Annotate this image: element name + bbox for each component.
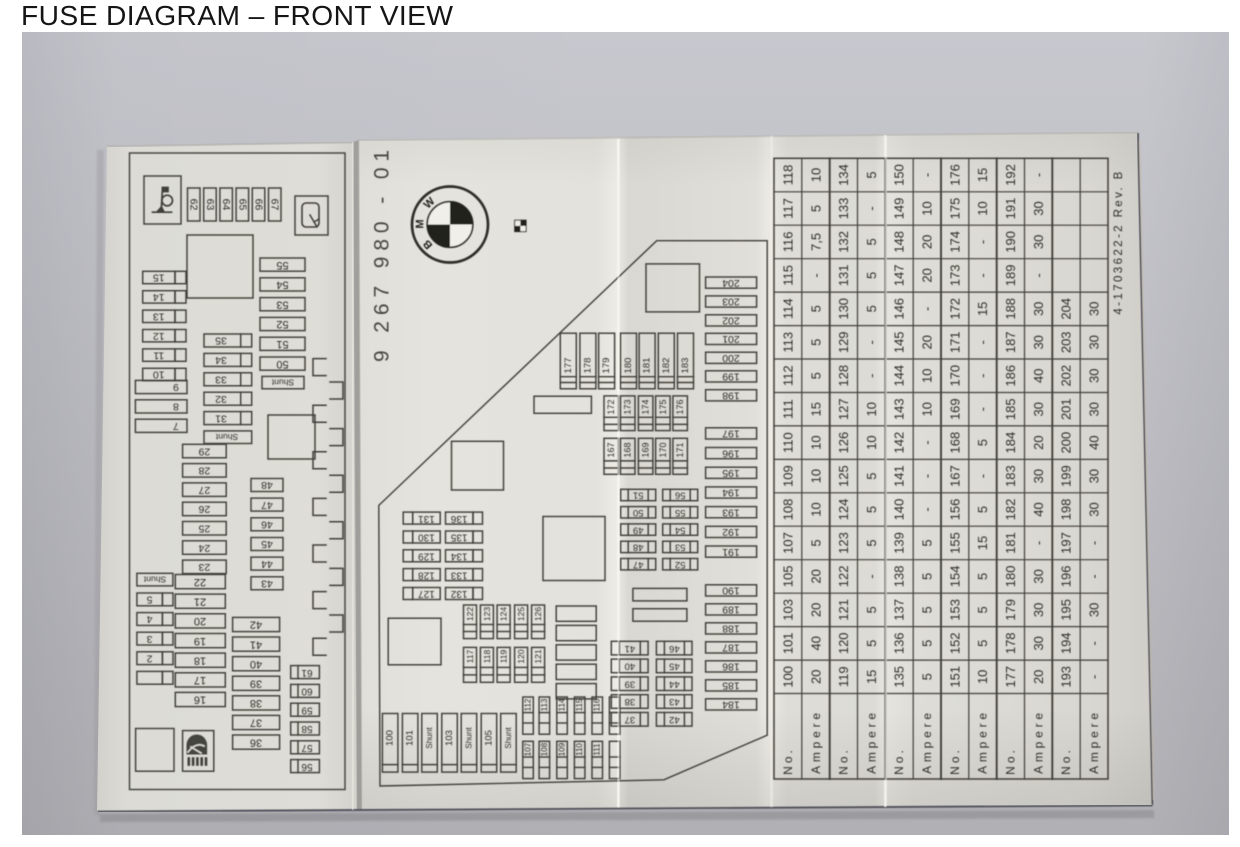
svg-text:40: 40 xyxy=(1031,368,1046,382)
svg-text:5: 5 xyxy=(864,640,879,647)
svg-text:173: 173 xyxy=(623,399,633,414)
svg-text:179: 179 xyxy=(601,358,612,374)
svg-text:118: 118 xyxy=(482,649,492,663)
svg-text:202: 202 xyxy=(1059,365,1074,387)
svg-text:15: 15 xyxy=(975,168,990,182)
svg-text:30: 30 xyxy=(1087,603,1102,617)
svg-text:115: 115 xyxy=(780,265,795,286)
svg-text:30: 30 xyxy=(1087,402,1102,416)
svg-text:39: 39 xyxy=(250,678,262,690)
svg-text:133: 133 xyxy=(836,198,851,220)
svg-text:17: 17 xyxy=(194,674,206,686)
svg-text:15: 15 xyxy=(808,402,823,416)
svg-text:136: 136 xyxy=(892,632,907,654)
svg-text:30: 30 xyxy=(1031,402,1046,416)
svg-text:-: - xyxy=(808,273,823,277)
svg-text:138: 138 xyxy=(892,566,907,588)
svg-text:5: 5 xyxy=(808,305,823,312)
svg-text:Shunt: Shunt xyxy=(143,575,166,585)
svg-text:30: 30 xyxy=(1031,201,1046,215)
svg-text:123: 123 xyxy=(836,532,851,554)
svg-text:134: 134 xyxy=(836,164,851,186)
svg-text:40: 40 xyxy=(1031,502,1046,516)
svg-text:30: 30 xyxy=(1031,302,1046,316)
svg-text:192: 192 xyxy=(1003,164,1018,186)
svg-text:175: 175 xyxy=(658,399,668,414)
svg-text:Shunt: Shunt xyxy=(504,727,513,749)
svg-text:40: 40 xyxy=(808,636,823,650)
svg-text:10: 10 xyxy=(975,201,990,215)
svg-text:53: 53 xyxy=(276,298,288,310)
svg-text:188: 188 xyxy=(1003,298,1018,320)
svg-text:40: 40 xyxy=(625,661,636,672)
svg-text:-: - xyxy=(975,407,990,411)
svg-text:118: 118 xyxy=(780,165,795,186)
svg-text:171: 171 xyxy=(675,442,685,457)
svg-text:5: 5 xyxy=(808,372,823,379)
svg-text:185: 185 xyxy=(722,680,740,692)
svg-text:201: 201 xyxy=(1059,398,1074,420)
svg-text:183: 183 xyxy=(680,358,691,374)
svg-text:55: 55 xyxy=(675,507,686,518)
svg-text:36: 36 xyxy=(250,736,262,748)
svg-text:66: 66 xyxy=(253,199,265,211)
svg-text:111: 111 xyxy=(780,399,795,419)
svg-text:139: 139 xyxy=(892,532,907,554)
svg-text:52: 52 xyxy=(276,318,288,330)
svg-text:12: 12 xyxy=(153,330,165,342)
svg-text:5: 5 xyxy=(808,339,823,346)
svg-text:182: 182 xyxy=(661,358,672,374)
svg-text:5: 5 xyxy=(864,506,879,513)
svg-text:10: 10 xyxy=(808,168,823,182)
svg-text:129: 129 xyxy=(836,331,851,353)
svg-text:51: 51 xyxy=(633,490,644,501)
svg-text:116: 116 xyxy=(593,698,602,711)
svg-text:112: 112 xyxy=(524,698,533,711)
svg-text:172: 172 xyxy=(947,298,962,320)
svg-text:42: 42 xyxy=(250,619,262,631)
svg-text:131: 131 xyxy=(836,265,851,287)
svg-text:38: 38 xyxy=(250,697,262,709)
svg-text:67: 67 xyxy=(269,199,281,211)
svg-text:128: 128 xyxy=(418,569,435,580)
svg-text:42: 42 xyxy=(669,714,680,725)
svg-text:189: 189 xyxy=(722,604,740,616)
svg-text:128: 128 xyxy=(836,365,851,387)
svg-text:-: - xyxy=(864,374,879,378)
svg-text:126: 126 xyxy=(836,432,851,454)
svg-text:133: 133 xyxy=(450,569,467,580)
svg-text:204: 204 xyxy=(1059,298,1074,320)
svg-text:177: 177 xyxy=(563,358,574,374)
svg-text:10: 10 xyxy=(920,201,935,215)
svg-text:141: 141 xyxy=(892,465,907,487)
svg-text:50: 50 xyxy=(276,358,288,370)
svg-text:55: 55 xyxy=(276,259,288,271)
svg-text:196: 196 xyxy=(722,447,740,459)
svg-text:186: 186 xyxy=(722,661,740,673)
svg-text:10: 10 xyxy=(153,369,165,381)
svg-text:30: 30 xyxy=(1031,235,1046,249)
svg-text:5: 5 xyxy=(147,594,153,606)
svg-text:10: 10 xyxy=(808,469,823,483)
svg-text:120: 120 xyxy=(836,632,851,654)
svg-text:193: 193 xyxy=(722,506,740,518)
svg-text:153: 153 xyxy=(947,599,962,621)
svg-text:39: 39 xyxy=(625,678,636,689)
svg-text:196: 196 xyxy=(1059,566,1074,588)
svg-text:144: 144 xyxy=(892,365,907,387)
svg-text:No.: No. xyxy=(948,747,962,775)
svg-text:Shunt: Shunt xyxy=(271,378,294,388)
svg-text:117: 117 xyxy=(465,649,475,663)
svg-text:197: 197 xyxy=(1059,532,1074,554)
svg-text:44: 44 xyxy=(669,678,680,689)
svg-text:198: 198 xyxy=(1059,499,1074,521)
svg-text:18: 18 xyxy=(194,654,206,666)
svg-text:180: 180 xyxy=(623,358,634,374)
svg-text:120: 120 xyxy=(516,649,526,663)
svg-text:152: 152 xyxy=(947,632,962,654)
svg-text:-: - xyxy=(920,507,935,511)
svg-text:190: 190 xyxy=(722,585,740,597)
svg-text:31: 31 xyxy=(215,412,227,424)
svg-text:10: 10 xyxy=(920,368,935,382)
svg-text:172: 172 xyxy=(606,399,616,414)
svg-text:143: 143 xyxy=(892,398,907,420)
svg-text:117: 117 xyxy=(780,198,795,219)
svg-text:122: 122 xyxy=(836,566,851,588)
svg-text:204: 204 xyxy=(722,277,740,289)
svg-text:54: 54 xyxy=(675,524,686,535)
svg-text:5: 5 xyxy=(864,171,879,178)
svg-text:Ampere: Ampere xyxy=(1031,709,1045,774)
svg-text:101: 101 xyxy=(405,730,416,746)
svg-text:49: 49 xyxy=(633,524,644,535)
svg-text:5: 5 xyxy=(864,606,879,613)
svg-text:47: 47 xyxy=(261,499,273,511)
svg-text:56: 56 xyxy=(301,761,313,772)
svg-text:146: 146 xyxy=(892,298,907,320)
svg-text:114: 114 xyxy=(558,698,567,711)
svg-text:5: 5 xyxy=(864,472,879,479)
svg-text:183: 183 xyxy=(1003,465,1018,487)
svg-text:176: 176 xyxy=(675,399,685,414)
svg-text:30: 30 xyxy=(1031,569,1046,583)
svg-text:59: 59 xyxy=(301,704,313,715)
svg-text:-: - xyxy=(1087,675,1102,679)
svg-text:38: 38 xyxy=(625,696,636,707)
svg-text:-: - xyxy=(1031,541,1046,545)
svg-text:145: 145 xyxy=(892,331,907,353)
svg-text:-: - xyxy=(920,173,935,177)
svg-text:125: 125 xyxy=(836,465,851,487)
svg-text:187: 187 xyxy=(1003,331,1018,353)
svg-text:20: 20 xyxy=(1031,670,1046,684)
svg-text:56: 56 xyxy=(675,490,686,501)
svg-text:170: 170 xyxy=(658,442,668,457)
svg-text:30: 30 xyxy=(1031,469,1046,483)
svg-text:5: 5 xyxy=(808,205,823,212)
svg-text:5: 5 xyxy=(864,238,879,245)
svg-text:113: 113 xyxy=(540,698,549,711)
svg-text:10: 10 xyxy=(808,435,823,449)
svg-text:186: 186 xyxy=(1003,365,1018,387)
svg-text:-: - xyxy=(864,574,879,578)
svg-text:107: 107 xyxy=(780,532,795,554)
svg-text:28: 28 xyxy=(198,465,210,477)
svg-text:43: 43 xyxy=(261,578,273,590)
svg-text:181: 181 xyxy=(642,358,653,374)
svg-text:191: 191 xyxy=(722,546,740,558)
svg-text:20: 20 xyxy=(920,235,935,249)
svg-text:-: - xyxy=(864,340,879,344)
svg-text:156: 156 xyxy=(947,499,962,521)
svg-text:21: 21 xyxy=(194,595,206,607)
svg-text:45: 45 xyxy=(261,538,273,550)
svg-text:182: 182 xyxy=(1003,499,1018,521)
svg-text:173: 173 xyxy=(947,265,962,287)
svg-text:-: - xyxy=(975,240,990,244)
svg-text:60: 60 xyxy=(301,686,313,697)
svg-text:No.: No. xyxy=(781,747,795,775)
svg-text:20: 20 xyxy=(920,335,935,349)
svg-text:126: 126 xyxy=(533,607,543,621)
svg-text:5: 5 xyxy=(864,539,879,546)
svg-text:5: 5 xyxy=(975,573,990,580)
svg-text:168: 168 xyxy=(623,442,633,457)
svg-text:121: 121 xyxy=(533,649,543,663)
svg-text:176: 176 xyxy=(947,164,962,186)
svg-text:187: 187 xyxy=(722,642,740,654)
svg-text:30: 30 xyxy=(1031,603,1046,617)
svg-text:137: 137 xyxy=(892,599,907,621)
svg-text:178: 178 xyxy=(1003,632,1018,654)
svg-text:108: 108 xyxy=(540,742,549,756)
svg-text:27: 27 xyxy=(198,484,210,496)
svg-text:No.: No. xyxy=(1059,747,1073,775)
svg-text:10: 10 xyxy=(920,402,935,416)
svg-text:FUSE DIAGRAM – FRONT VIEW: FUSE DIAGRAM – FRONT VIEW xyxy=(21,0,453,31)
svg-text:184: 184 xyxy=(722,699,740,711)
svg-text:8: 8 xyxy=(173,401,179,413)
svg-text:20: 20 xyxy=(194,615,206,627)
svg-text:132: 132 xyxy=(450,588,467,599)
svg-text:108: 108 xyxy=(780,499,795,521)
svg-text:45: 45 xyxy=(669,661,680,672)
svg-text:201: 201 xyxy=(722,333,740,345)
svg-text:134: 134 xyxy=(450,551,467,562)
svg-text:105: 105 xyxy=(483,730,494,746)
svg-text:194: 194 xyxy=(1059,632,1074,654)
svg-text:100: 100 xyxy=(385,730,396,746)
svg-text:16: 16 xyxy=(194,694,206,706)
svg-text:-: - xyxy=(975,340,990,344)
svg-text:197: 197 xyxy=(722,428,740,440)
svg-text:Ampere: Ampere xyxy=(976,709,990,774)
svg-text:9 267 980 - 01: 9 267 980 - 01 xyxy=(371,144,394,362)
svg-text:40: 40 xyxy=(1087,435,1102,449)
svg-text:20: 20 xyxy=(808,603,823,617)
svg-text:15: 15 xyxy=(975,536,990,550)
svg-text:61: 61 xyxy=(301,667,313,678)
svg-text:125: 125 xyxy=(516,607,526,621)
svg-text:30: 30 xyxy=(1087,302,1102,316)
svg-text:174: 174 xyxy=(641,399,651,414)
svg-text:20: 20 xyxy=(808,569,823,583)
svg-text:46: 46 xyxy=(669,643,680,654)
svg-text:148: 148 xyxy=(892,231,907,253)
svg-text:Ampere: Ampere xyxy=(864,709,878,774)
svg-text:57: 57 xyxy=(301,742,313,753)
svg-text:154: 154 xyxy=(947,566,962,588)
svg-text:5: 5 xyxy=(864,305,879,312)
svg-text:122: 122 xyxy=(465,607,475,621)
svg-text:155: 155 xyxy=(947,532,962,554)
svg-text:53: 53 xyxy=(675,542,686,553)
svg-text:5: 5 xyxy=(975,439,990,446)
svg-text:Shunt: Shunt xyxy=(464,727,473,749)
svg-text:110: 110 xyxy=(575,743,584,756)
svg-text:11: 11 xyxy=(153,349,164,361)
svg-text:20: 20 xyxy=(1031,435,1046,449)
svg-text:129: 129 xyxy=(418,551,435,562)
svg-text:115: 115 xyxy=(575,698,584,711)
svg-text:121: 121 xyxy=(836,599,851,621)
svg-text:20: 20 xyxy=(920,268,935,282)
svg-text:167: 167 xyxy=(606,442,616,457)
svg-text:15: 15 xyxy=(153,272,165,284)
svg-text:4-1703622-2 Rev. B: 4-1703622-2 Rev. B xyxy=(1113,169,1125,314)
svg-text:192: 192 xyxy=(722,526,740,538)
svg-text:5: 5 xyxy=(920,673,935,680)
svg-text:199: 199 xyxy=(722,371,740,383)
svg-text:178: 178 xyxy=(582,358,593,374)
svg-text:22: 22 xyxy=(194,576,206,588)
svg-text:195: 195 xyxy=(722,467,740,479)
svg-text:14: 14 xyxy=(153,291,165,303)
svg-text:No.: No. xyxy=(1004,747,1018,775)
svg-text:-: - xyxy=(1031,273,1046,277)
svg-text:170: 170 xyxy=(947,365,962,387)
svg-text:5: 5 xyxy=(920,573,935,580)
svg-text:46: 46 xyxy=(261,519,273,531)
svg-text:23: 23 xyxy=(198,561,210,573)
svg-text:-: - xyxy=(920,307,935,311)
svg-text:203: 203 xyxy=(1059,331,1074,353)
svg-text:116: 116 xyxy=(780,232,795,253)
svg-text:190: 190 xyxy=(1003,231,1018,253)
svg-text:195: 195 xyxy=(1059,599,1074,621)
svg-text:10: 10 xyxy=(864,435,879,449)
svg-text:202: 202 xyxy=(722,315,740,327)
svg-text:124: 124 xyxy=(499,607,509,621)
svg-text:203: 203 xyxy=(722,296,740,308)
svg-text:-: - xyxy=(975,474,990,478)
svg-text:150: 150 xyxy=(892,164,907,186)
svg-text:19: 19 xyxy=(194,635,206,647)
svg-text:44: 44 xyxy=(261,558,273,570)
svg-text:No.: No. xyxy=(892,747,906,775)
svg-text:33: 33 xyxy=(215,374,227,386)
svg-text:30: 30 xyxy=(1087,469,1102,483)
svg-text:9: 9 xyxy=(173,381,179,393)
svg-text:168: 168 xyxy=(947,432,962,454)
svg-text:193: 193 xyxy=(1059,666,1074,688)
svg-text:109: 109 xyxy=(558,742,567,756)
svg-text:24: 24 xyxy=(198,542,210,554)
svg-text:191: 191 xyxy=(1003,198,1018,220)
svg-text:112: 112 xyxy=(780,365,795,386)
svg-text:109: 109 xyxy=(780,465,795,487)
svg-text:Ampere: Ampere xyxy=(809,709,823,774)
svg-text:M: M xyxy=(414,219,426,228)
svg-text:7,5: 7,5 xyxy=(808,233,823,251)
svg-text:100: 100 xyxy=(780,666,795,688)
svg-text:167: 167 xyxy=(947,465,962,487)
svg-text:4: 4 xyxy=(147,613,153,625)
svg-text:-: - xyxy=(975,374,990,378)
svg-text:5: 5 xyxy=(920,640,935,647)
svg-text:5: 5 xyxy=(864,272,879,279)
svg-text:177: 177 xyxy=(1003,666,1018,688)
svg-text:54: 54 xyxy=(276,279,288,291)
svg-text:7: 7 xyxy=(173,420,179,432)
svg-text:37: 37 xyxy=(250,717,262,729)
svg-text:200: 200 xyxy=(1059,432,1074,454)
svg-text:119: 119 xyxy=(836,666,851,687)
svg-text:30: 30 xyxy=(1087,368,1102,382)
svg-text:131: 131 xyxy=(418,513,435,524)
svg-text:-: - xyxy=(864,206,879,210)
svg-text:198: 198 xyxy=(722,390,740,402)
svg-text:114: 114 xyxy=(780,298,795,319)
svg-text:30: 30 xyxy=(1031,636,1046,650)
svg-text:-: - xyxy=(1031,173,1046,177)
svg-text:103: 103 xyxy=(444,730,455,746)
svg-text:130: 130 xyxy=(418,532,435,543)
svg-text:5: 5 xyxy=(975,606,990,613)
svg-text:113: 113 xyxy=(780,332,795,353)
svg-text:103: 103 xyxy=(780,599,795,621)
svg-text:110: 110 xyxy=(780,432,795,453)
svg-text:147: 147 xyxy=(892,265,907,287)
svg-text:2: 2 xyxy=(147,652,153,664)
svg-text:41: 41 xyxy=(625,643,636,654)
svg-text:149: 149 xyxy=(892,198,907,220)
svg-text:10: 10 xyxy=(808,502,823,516)
svg-text:34: 34 xyxy=(215,354,227,366)
svg-text:175: 175 xyxy=(947,198,962,220)
svg-text:5: 5 xyxy=(975,640,990,647)
svg-text:20: 20 xyxy=(808,670,823,684)
svg-text:43: 43 xyxy=(669,696,680,707)
svg-text:189: 189 xyxy=(1003,265,1018,287)
svg-text:30: 30 xyxy=(1087,502,1102,516)
svg-text:140: 140 xyxy=(892,499,907,521)
svg-text:171: 171 xyxy=(947,331,962,353)
svg-text:169: 169 xyxy=(947,398,962,420)
svg-text:5: 5 xyxy=(920,539,935,546)
svg-text:105: 105 xyxy=(780,566,795,588)
svg-text:111: 111 xyxy=(593,743,602,756)
svg-text:123: 123 xyxy=(482,607,492,621)
svg-text:26: 26 xyxy=(198,503,210,515)
svg-text:48: 48 xyxy=(261,479,273,491)
svg-text:3: 3 xyxy=(147,633,153,645)
svg-text:169: 169 xyxy=(641,442,651,457)
